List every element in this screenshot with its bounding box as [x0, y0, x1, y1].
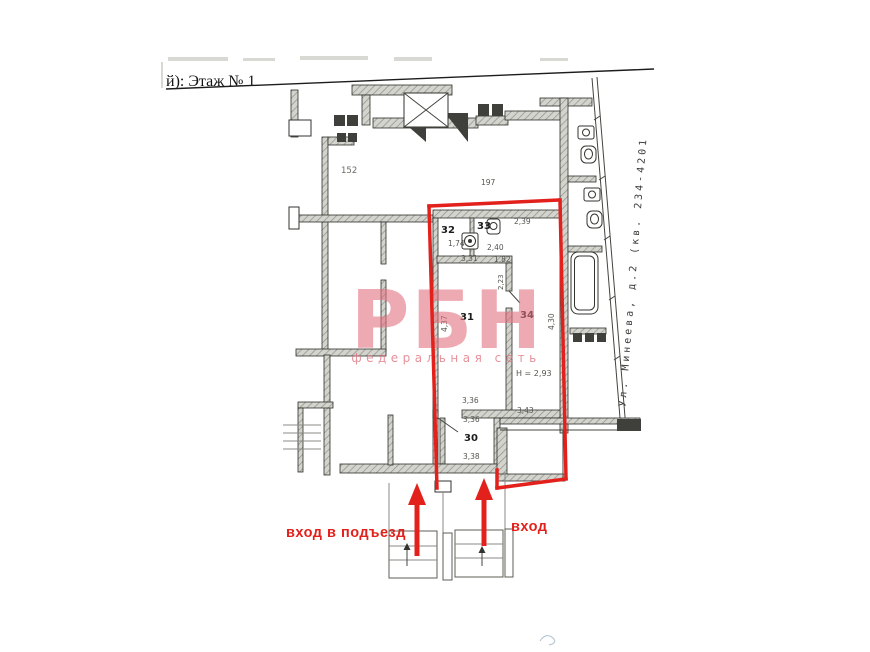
- dim-label: 3,43: [517, 406, 534, 415]
- dim-label: 152: [341, 166, 357, 176]
- toilet-icon: [581, 146, 596, 163]
- floor-plan-canvas: й): Этаж № 1 Ул. Минеева, д.2 (кв. 234-4…: [0, 0, 870, 652]
- watermark-subtitle: федеральная сеть: [351, 351, 540, 365]
- dim-label: 3,31: [461, 254, 478, 263]
- toilet-icon: [587, 211, 602, 228]
- entrance-label: вход: [511, 519, 548, 535]
- dim-label: 2,39: [514, 217, 531, 226]
- dim-label: 3,38: [463, 452, 480, 461]
- dim-label: 4,30: [547, 313, 556, 330]
- dim-label: 3,36: [462, 396, 479, 405]
- dim-label: 2,40: [487, 243, 504, 252]
- room-30-number: 30: [464, 433, 478, 444]
- dim-label: 1,74: [448, 239, 465, 248]
- dim-label: 3,36: [463, 415, 480, 424]
- sink-icon: [584, 188, 600, 201]
- bathtub-icon: [571, 252, 598, 314]
- ceiling-height-label: Н = 2,93: [516, 369, 552, 378]
- room-32-number: 32: [441, 225, 455, 236]
- dim-label: 1,82: [494, 255, 511, 264]
- dim-label: 197: [481, 178, 496, 187]
- sink-icon: [578, 126, 594, 139]
- scanned-floor-plan-page: й): Этаж № 1 Ул. Минеева, д.2 (кв. 234-4…: [0, 0, 870, 652]
- elevator-shaft-icon: [404, 93, 448, 127]
- entrance-building-label: вход в подъезд: [286, 525, 406, 541]
- agency-watermark: РБН федеральная сеть: [351, 274, 544, 367]
- room-33-number: 33: [477, 221, 491, 232]
